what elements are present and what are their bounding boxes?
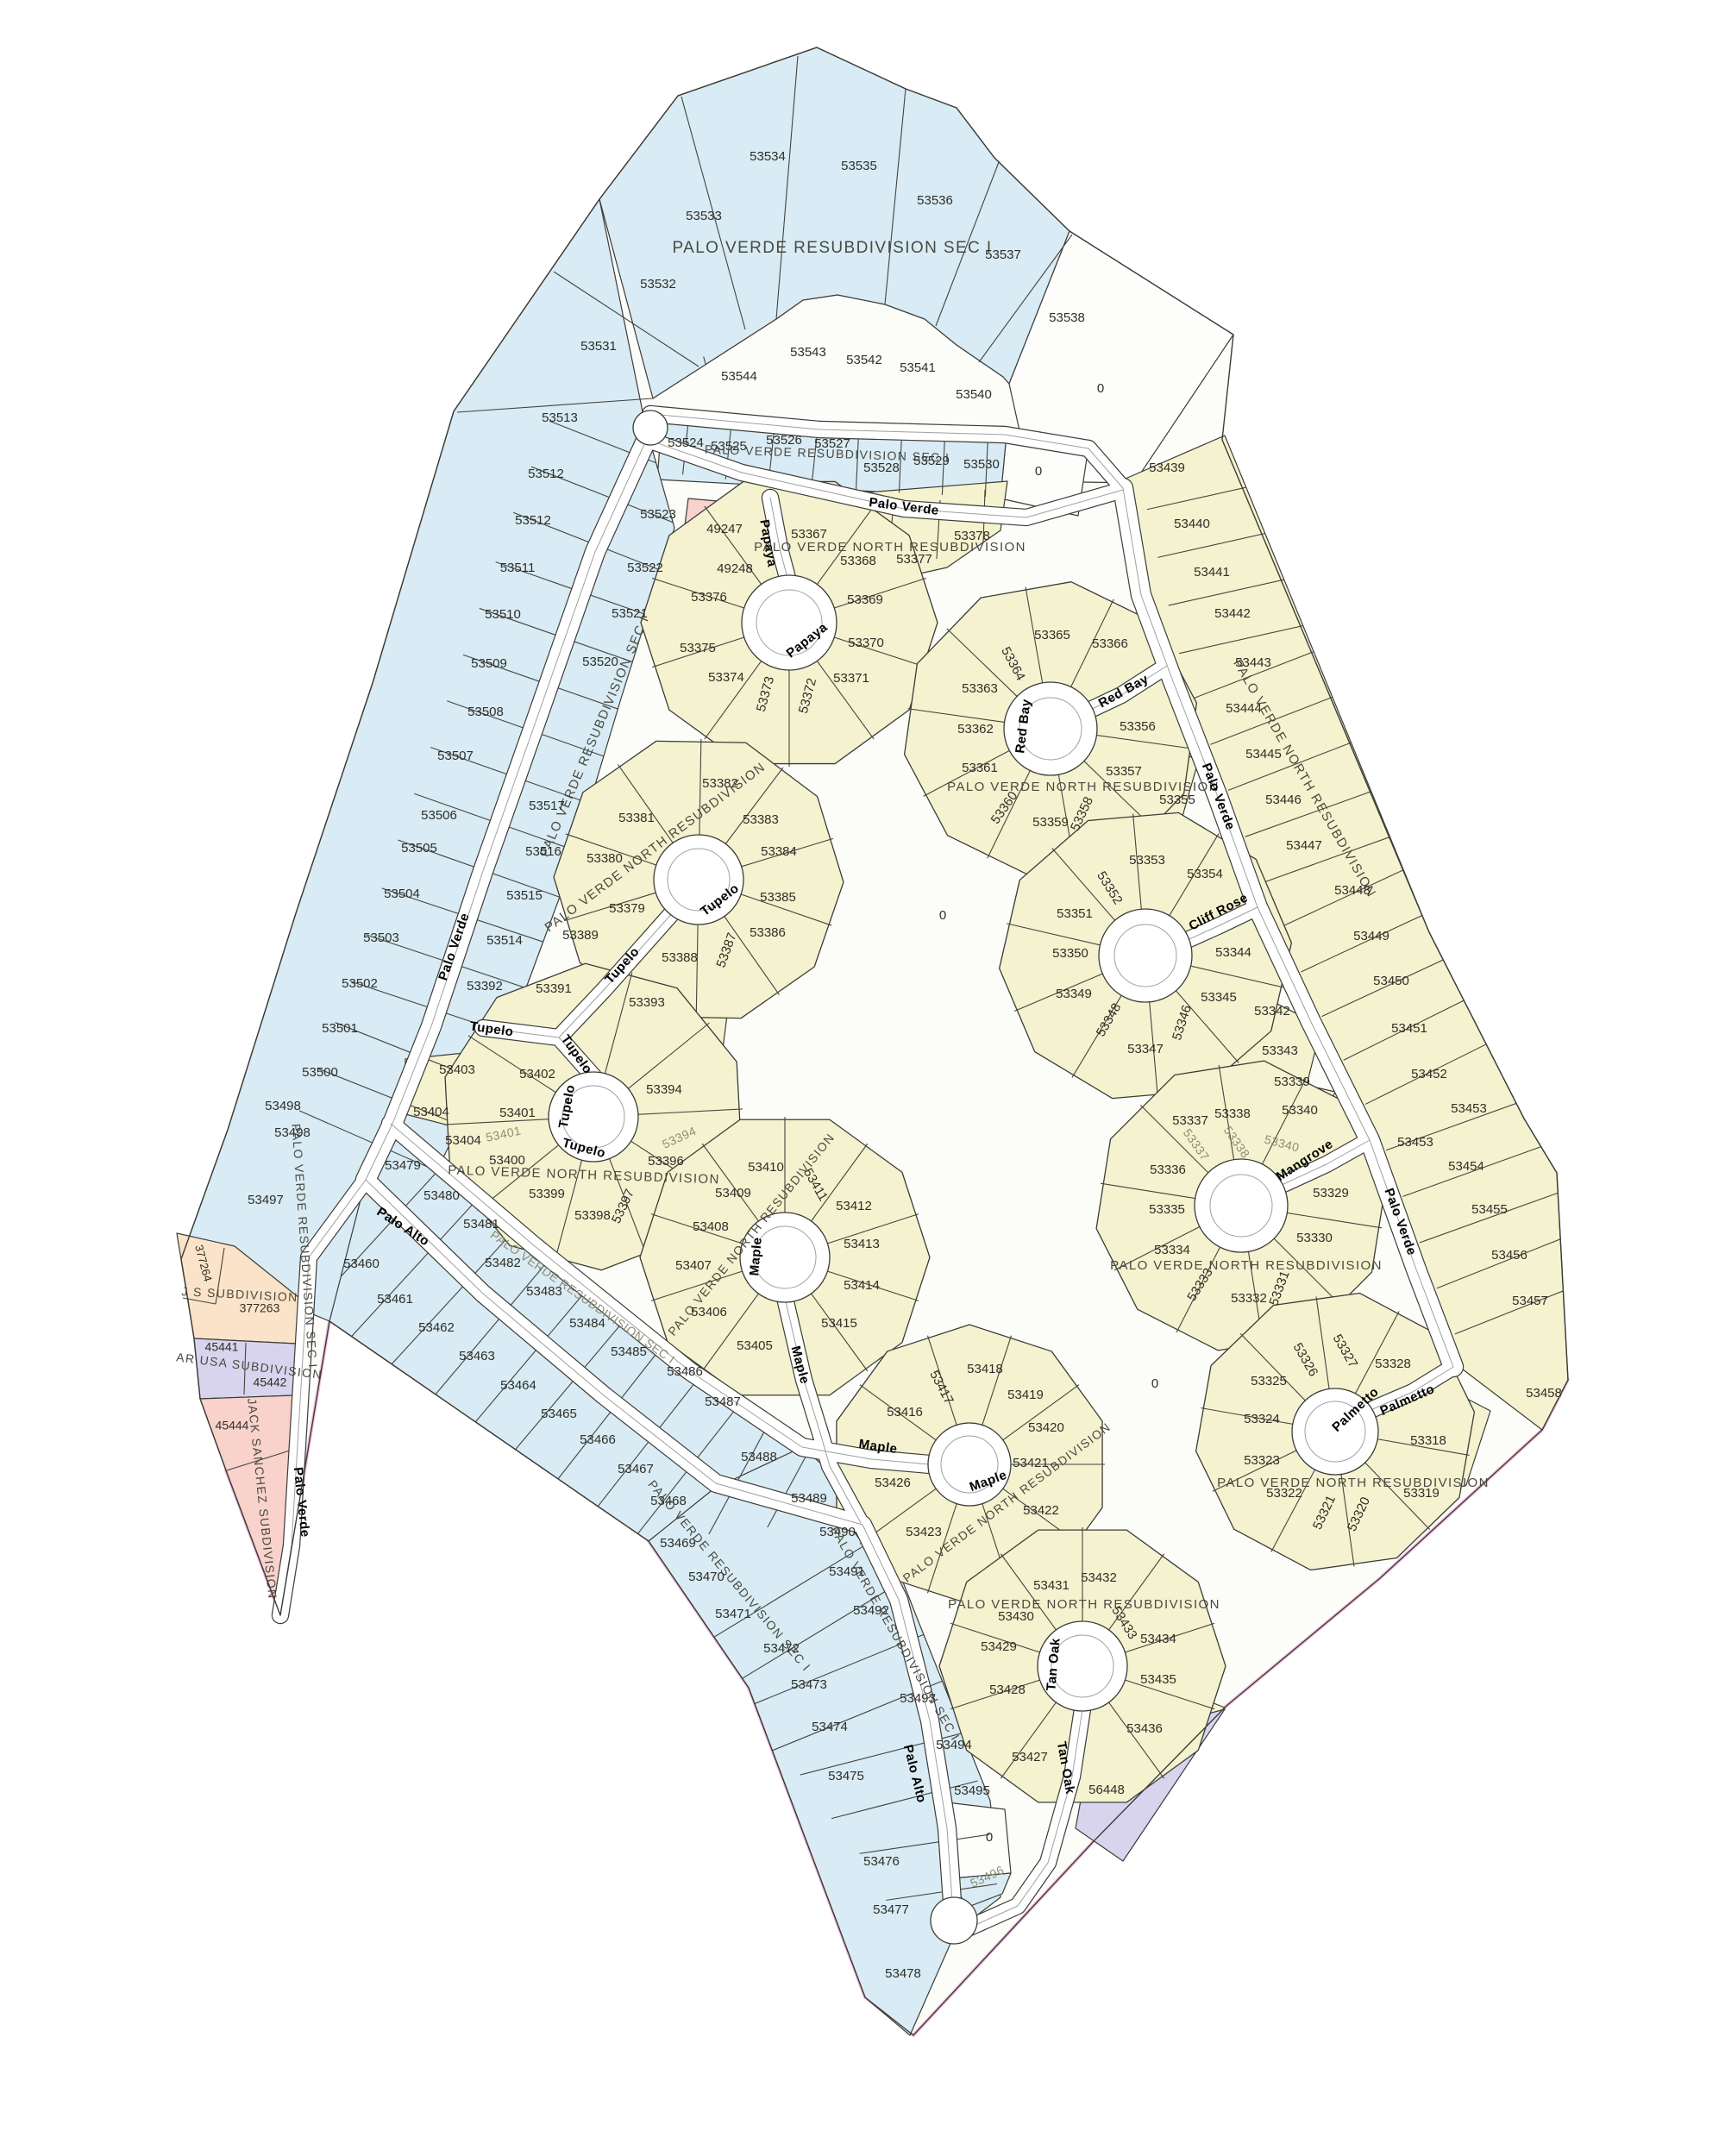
parcel-label: 53344 — [1215, 945, 1251, 960]
parcel-label: 53500 — [302, 1065, 338, 1080]
parcel-label: 0 — [986, 1830, 993, 1845]
parcel-label: 53337 — [1172, 1113, 1208, 1128]
parcel-label: 53401 — [499, 1106, 536, 1120]
parcel-label: 53479 — [385, 1158, 421, 1173]
parcel-label: 53486 — [667, 1364, 703, 1379]
parcel-label: 53538 — [1049, 310, 1085, 325]
parcel-label: 53461 — [377, 1292, 413, 1307]
parcel-label: 53334 — [1154, 1243, 1190, 1257]
parcel-label: 53361 — [962, 761, 998, 775]
parcel-label: 53403 — [439, 1062, 475, 1077]
parcel-label: 53384 — [761, 844, 797, 859]
parcel-label: 53356 — [1120, 719, 1156, 734]
parcel-label: 53407 — [675, 1258, 712, 1273]
parcel-label: 45444 — [216, 1419, 249, 1432]
parcel-label: 53480 — [423, 1188, 460, 1203]
parcel-label: 53404 — [445, 1133, 481, 1148]
parcel-label: 53396 — [648, 1154, 684, 1169]
parcel-label: 53388 — [662, 950, 698, 965]
parcel-label: 53489 — [791, 1491, 827, 1506]
parcel-label: 53487 — [705, 1395, 741, 1409]
parcel-label: 53435 — [1140, 1672, 1176, 1687]
subdivision-label: PALO VERDE NORTH RESUBDIVISION — [1217, 1476, 1490, 1490]
parcel-label: 45442 — [254, 1376, 287, 1389]
parcel-label: 53336 — [1150, 1163, 1186, 1177]
parcel-label: 53357 — [1106, 764, 1142, 779]
parcel-label: 53413 — [844, 1237, 880, 1251]
parcel-label: 53536 — [917, 193, 953, 208]
parcel-label: 53318 — [1410, 1433, 1446, 1448]
parcel-label: 53347 — [1127, 1042, 1164, 1056]
parcel-label: 53362 — [957, 722, 994, 736]
parcel-label: 53441 — [1194, 565, 1230, 580]
parcel-label: 53409 — [715, 1186, 751, 1200]
parcel-label: 0 — [1097, 381, 1104, 396]
parcel-label: 53414 — [844, 1278, 880, 1293]
parcel-label: 53429 — [981, 1639, 1017, 1654]
parcel-label: 53464 — [500, 1378, 536, 1393]
parcel-label: 53503 — [363, 931, 399, 945]
parcel-label: 53422 — [1023, 1503, 1059, 1518]
parcel-label: 45441 — [205, 1340, 239, 1354]
parcel-label: 53339 — [1274, 1075, 1310, 1089]
plat-map: 53534535355353653533PALO VERDE RESUBDIVI… — [0, 0, 1725, 2156]
parcel-label: 53454 — [1448, 1159, 1484, 1174]
parcel-label: 53465 — [541, 1407, 577, 1421]
parcel-label: 53406 — [691, 1305, 727, 1319]
parcel-label: 53505 — [401, 841, 437, 856]
parcel-label: 53428 — [989, 1683, 1026, 1697]
subdivision-label: PALO VERDE NORTH RESUBDIVISION — [948, 1597, 1220, 1612]
parcel-label: 53418 — [967, 1362, 1003, 1376]
parcel-label: 53510 — [485, 607, 521, 622]
parcel-label: 53466 — [580, 1432, 616, 1447]
parcel-label: 53498 — [265, 1099, 301, 1113]
parcel-label: 53475 — [828, 1769, 864, 1783]
parcel-label: 53363 — [962, 681, 998, 696]
parcel-label: 53533 — [686, 209, 722, 223]
parcel-label: 53520 — [582, 655, 618, 669]
parcel-label: 53470 — [688, 1570, 724, 1584]
parcel-label: 53485 — [611, 1344, 647, 1359]
parcel-label: 53432 — [1081, 1570, 1117, 1585]
subdivision-label: PALO VERDE NORTH RESUBDIVISION — [1110, 1258, 1383, 1273]
parcel-label: 53369 — [847, 592, 883, 607]
parcel-label: 0 — [1151, 1376, 1158, 1391]
parcel-label: 53349 — [1056, 987, 1092, 1001]
parcel-label: 53399 — [529, 1187, 565, 1201]
parcel-label: 53325 — [1251, 1374, 1287, 1388]
parcel-label: 53354 — [1187, 867, 1223, 881]
street-bubble — [633, 411, 668, 445]
parcel-label: 53332 — [1231, 1291, 1267, 1306]
parcel-label: 53335 — [1149, 1202, 1185, 1217]
parcel-label: 53473 — [791, 1677, 827, 1692]
subdivision-label: PALO VERDE RESUBDIVISION SEC I — [672, 239, 992, 257]
parcel-label: 53451 — [1391, 1021, 1427, 1036]
parcel-label: 53477 — [873, 1902, 909, 1917]
parcel-label: 53445 — [1245, 747, 1282, 761]
parcel-label: 53531 — [580, 339, 617, 354]
parcel-label: 53535 — [841, 159, 877, 173]
parcel-label: 53391 — [536, 981, 572, 996]
parcel-label: 53474 — [812, 1720, 848, 1734]
parcel-label: 53340 — [1282, 1103, 1318, 1118]
parcel-label: 0 — [1035, 464, 1042, 479]
parcel-label: 377263 — [240, 1301, 280, 1315]
parcel-label: 53430 — [998, 1609, 1034, 1624]
parcel-label: 53544 — [721, 369, 757, 384]
parcel-label: 53402 — [519, 1067, 555, 1081]
plat-map-page: 53534535355353653533PALO VERDE RESUBDIVI… — [0, 0, 1725, 2156]
parcel-label: 53371 — [833, 671, 869, 686]
parcel-label: 53447 — [1286, 838, 1322, 853]
parcel-label: 53426 — [875, 1476, 911, 1490]
parcel-label: 53374 — [708, 670, 744, 685]
parcel-label: 53329 — [1313, 1186, 1349, 1200]
parcel-label: 53522 — [627, 561, 663, 575]
parcel-label: 53322 — [1266, 1486, 1302, 1501]
parcel-label: 53514 — [486, 933, 523, 948]
parcel-label: 53353 — [1129, 853, 1165, 868]
parcel-label: 53509 — [471, 656, 507, 671]
parcel-label: 53328 — [1375, 1357, 1411, 1371]
parcel-label: 0 — [939, 908, 946, 923]
parcel-label: 53478 — [885, 1966, 921, 1981]
parcel-label: 53393 — [629, 995, 665, 1010]
parcel-label: 53350 — [1052, 946, 1088, 961]
parcel-label: 53471 — [715, 1607, 751, 1621]
parcel-label: 53383 — [743, 812, 779, 827]
parcel-label: 53504 — [384, 887, 420, 901]
parcel-label: 53389 — [562, 928, 599, 943]
parcel-label: 53427 — [1012, 1750, 1048, 1764]
parcel-label: 53410 — [748, 1160, 784, 1175]
parcel-label: 53540 — [956, 387, 992, 402]
parcel-label: 53524 — [668, 436, 704, 450]
parcel-label: 53458 — [1526, 1386, 1562, 1401]
parcel-label: 53379 — [609, 901, 645, 916]
parcel-label: 53398 — [574, 1208, 611, 1223]
parcel-label: 53453 — [1397, 1135, 1433, 1150]
parcel-label: 53529 — [913, 454, 950, 468]
parcel-label: 53345 — [1201, 990, 1237, 1005]
street-bubble — [931, 1897, 977, 1944]
parcel-label: 53366 — [1092, 636, 1128, 651]
parcel-label: 53515 — [506, 888, 543, 903]
parcel-label: 53355 — [1159, 793, 1195, 807]
parcel-label: 53368 — [840, 554, 876, 568]
parcel-label: 53476 — [863, 1854, 900, 1869]
parcel-label: 53541 — [900, 360, 936, 375]
parcel-label: 53506 — [421, 808, 457, 823]
parcel-label: 53542 — [846, 353, 882, 367]
parcel-label: 53534 — [750, 149, 786, 164]
parcel-label: 53532 — [640, 277, 676, 291]
parcel-label: 53488 — [741, 1450, 777, 1464]
parcel-label: 53508 — [467, 705, 504, 719]
parcel-label: 53528 — [863, 461, 900, 475]
parcel-label: 53330 — [1296, 1231, 1333, 1245]
parcel-label: 53376 — [691, 590, 727, 605]
parcel-label: 53516 — [525, 844, 561, 859]
parcel-label: 53452 — [1411, 1067, 1447, 1081]
parcel-label: 53351 — [1057, 906, 1093, 921]
parcel-label: 53507 — [437, 749, 474, 763]
parcel-label: 53375 — [680, 641, 716, 655]
cul-de-sac — [1099, 909, 1192, 1002]
parcel-label: 53440 — [1174, 517, 1210, 531]
parcel-label: 53378 — [954, 529, 990, 543]
parcel-label: 53446 — [1265, 793, 1302, 807]
parcel-label: 53416 — [887, 1405, 923, 1420]
parcel-label: 53359 — [1032, 815, 1069, 830]
parcel-label: 53483 — [526, 1284, 562, 1299]
parcel-label: 53323 — [1244, 1453, 1280, 1468]
parcel-label: 53319 — [1403, 1486, 1440, 1501]
parcel-label: 53523 — [640, 507, 676, 522]
parcel-label: 53343 — [1262, 1044, 1298, 1058]
parcel-label: 49247 — [706, 522, 743, 536]
parcel-label: 53460 — [343, 1257, 379, 1271]
parcel-label: 53381 — [618, 811, 655, 825]
parcel-label: 53412 — [836, 1199, 872, 1213]
parcel-label: 53415 — [821, 1316, 857, 1331]
parcel-label: 53370 — [848, 636, 884, 650]
parcel-label: 53513 — [542, 411, 578, 425]
parcel-label: 53484 — [569, 1316, 605, 1331]
parcel-label: 53439 — [1149, 461, 1185, 475]
parcel-label: 49248 — [717, 561, 753, 576]
parcel-label: 53456 — [1491, 1248, 1527, 1263]
parcel-label: 53530 — [963, 457, 1000, 472]
parcel-label: 53442 — [1214, 606, 1251, 621]
parcel-label: 53467 — [618, 1462, 654, 1476]
parcel-label: 53386 — [750, 925, 786, 940]
parcel-label: 53394 — [646, 1082, 682, 1097]
parcel-label: 53463 — [459, 1349, 495, 1363]
parcel-label: 53392 — [467, 979, 503, 993]
parcel-label: 53365 — [1034, 628, 1070, 642]
parcel-label: 53404 — [413, 1105, 449, 1119]
parcel-label: 53537 — [985, 248, 1021, 262]
parcel-label: 53457 — [1512, 1294, 1548, 1308]
parcel-label: 53511 — [500, 561, 536, 575]
parcel-label: 53453 — [1451, 1101, 1487, 1116]
parcel-label: 53497 — [248, 1193, 284, 1207]
parcel-label: 53449 — [1353, 929, 1389, 943]
parcel-label: 53420 — [1028, 1420, 1064, 1435]
parcel-label: 53501 — [322, 1021, 358, 1036]
parcel-label: 53462 — [418, 1320, 455, 1335]
parcel-label: 53423 — [906, 1525, 942, 1539]
parcel-label: 53338 — [1214, 1106, 1251, 1121]
parcel-label: 53405 — [737, 1338, 773, 1353]
parcel-label: 53419 — [1007, 1388, 1044, 1402]
parcel-label: 53434 — [1140, 1632, 1176, 1646]
parcel-label: 53436 — [1126, 1721, 1163, 1736]
parcel-label: 53324 — [1244, 1412, 1280, 1426]
parcel-label: 53448 — [1334, 883, 1371, 898]
parcel-label: 53431 — [1033, 1578, 1069, 1593]
parcel-label: 53495 — [954, 1783, 990, 1798]
parcel-label: 53380 — [586, 851, 623, 866]
parcel-label: 53512 — [528, 467, 564, 481]
cul-de-sac — [928, 1423, 1011, 1506]
parcel-label: 53517 — [529, 799, 565, 813]
parcel-label: 53450 — [1373, 974, 1409, 988]
parcel-label: 53502 — [342, 976, 378, 991]
parcel-label: 53385 — [760, 890, 796, 905]
parcel-label: 56448 — [1088, 1783, 1125, 1797]
parcel-label: 53472 — [763, 1641, 800, 1656]
parcel-label: 53455 — [1471, 1202, 1508, 1217]
parcel-label: 53342 — [1254, 1004, 1290, 1018]
parcel-label: 53512 — [515, 513, 551, 528]
parcel-label: 53377 — [896, 552, 932, 567]
parcel-label: 53543 — [790, 345, 826, 360]
parcel-label: 53408 — [693, 1219, 729, 1234]
